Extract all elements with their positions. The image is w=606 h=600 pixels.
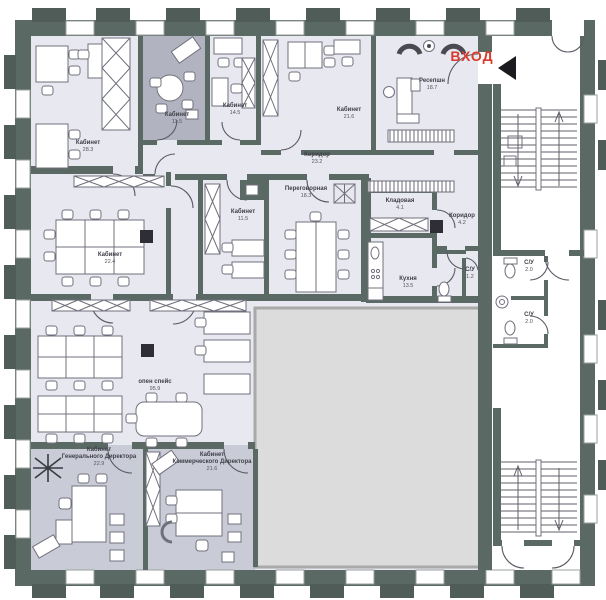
room-label-office-11-center: Кабинет 11.5 <box>231 209 255 223</box>
room-name: опен спейс <box>138 379 171 386</box>
room-label-wc-2: С/У 2.0 <box>524 260 534 274</box>
floor-plan-drawing <box>0 0 606 600</box>
masked-area <box>255 308 480 567</box>
room-area: 95.9 <box>138 386 171 393</box>
room-label-kitchen: Кухня 13.5 <box>399 276 417 290</box>
entrance-label: ВХОД <box>450 48 493 64</box>
room-label-reception: Ресепшн 18.7 <box>419 78 445 92</box>
room-label-ceo-office: Кабинет Генерального Директора 22.9 <box>62 447 136 468</box>
room-name: С/У <box>465 267 475 274</box>
room-area: 18.3 <box>285 193 327 200</box>
room-name: Кабинет <box>231 209 255 216</box>
room-name: Кабинет <box>165 112 189 119</box>
room-area: 11.5 <box>165 119 189 126</box>
room-area: 14.5 <box>223 110 247 117</box>
room-area: 4.1 <box>386 205 415 212</box>
room-name: Ресепшн <box>419 78 445 85</box>
room-label-corridor-23: Коридор 23.2 <box>304 152 330 166</box>
room-name: Кабинет <box>98 252 122 259</box>
room-area: 22.9 <box>62 461 136 468</box>
room-label-office-21-top: Кабинет 21.6 <box>337 107 361 121</box>
floor-plan-page: Кабинет 28.3 Кабинет 11.5 Кабинет 14.5 К… <box>0 0 606 600</box>
room-label-open-space: опен спейс 95.9 <box>138 379 171 393</box>
room-name: Кабинет <box>173 452 252 459</box>
room-label-meeting-room: Переговорная 18.3 <box>285 186 327 200</box>
room-area: 11.5 <box>231 216 255 223</box>
room-area: 22.4 <box>98 259 122 266</box>
room-name-line2: Коммерческого Директора <box>173 459 252 466</box>
room-label-office-11-top: Кабинет 11.5 <box>165 112 189 126</box>
room-area: 2.0 <box>524 267 534 274</box>
room-name: Кладовая <box>386 198 415 205</box>
room-label-wc-3: С/У 2.0 <box>524 312 534 326</box>
room-name: Коридор <box>449 213 475 220</box>
room-area: 28.3 <box>76 147 100 154</box>
room-area: 21.6 <box>337 114 361 121</box>
room-area: 1.2 <box>465 274 475 281</box>
room-name: Кабинет <box>223 103 247 110</box>
room-name-line2: Генерального Директора <box>62 454 136 461</box>
room-label-cd-office: Кабинет Коммерческого Директора 21.6 <box>173 452 252 473</box>
room-area: 18.7 <box>419 85 445 92</box>
room-name: Кабинет <box>76 140 100 147</box>
room-name: Переговорная <box>285 186 327 193</box>
room-label-office-22: Кабинет 22.4 <box>98 252 122 266</box>
room-name: С/У <box>524 312 534 319</box>
room-name: С/У <box>524 260 534 267</box>
room-area: 4.2 <box>449 220 475 227</box>
room-name: Коридор <box>304 152 330 159</box>
room-name: Кабинет <box>337 107 361 114</box>
room-area: 23.2 <box>304 159 330 166</box>
room-label-corridor-4: Коридор 4.2 <box>449 213 475 227</box>
room-area: 13.5 <box>399 283 417 290</box>
room-name: Кухня <box>399 276 417 283</box>
room-label-wc-1: С/У 1.2 <box>465 267 475 281</box>
room-label-office-28: Кабинет 28.3 <box>76 140 100 154</box>
room-label-storeroom: Кладовая 4.1 <box>386 198 415 212</box>
room-label-office-14: Кабинет 14.5 <box>223 103 247 117</box>
room-name: Кабинет <box>62 447 136 454</box>
room-area: 21.6 <box>173 466 252 473</box>
room-area: 2.0 <box>524 319 534 326</box>
